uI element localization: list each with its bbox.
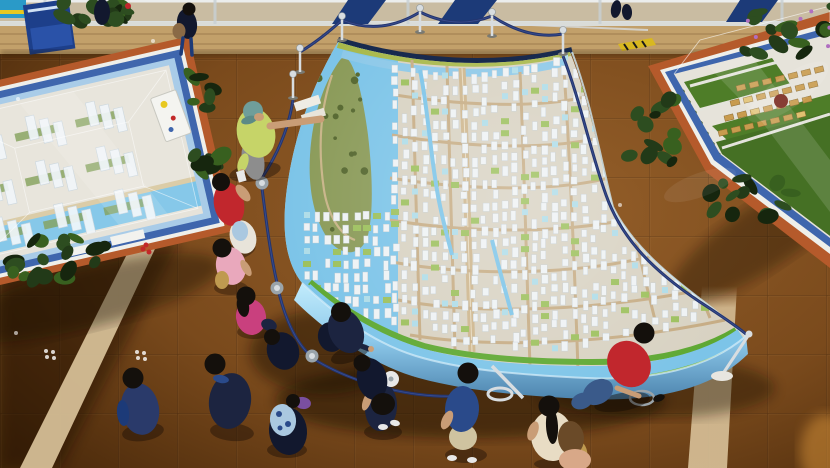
person-leaning-navy-part	[331, 302, 351, 322]
leaning-post-base	[711, 371, 733, 381]
person-blue-polo-part	[467, 457, 477, 463]
purple-flower	[754, 35, 758, 39]
person-walking-top-part	[181, 38, 183, 54]
light-reflection	[143, 357, 147, 361]
light-reflection	[52, 356, 56, 360]
light-reflection	[135, 350, 139, 354]
person-dark-d-part	[354, 355, 371, 372]
red-flower	[141, 247, 146, 252]
person-walking-top-part	[183, 3, 196, 16]
post-top-ball	[309, 353, 315, 359]
person-dark-b-part	[264, 329, 280, 345]
wall-poster-stripe	[0, 10, 26, 14]
light-reflection	[151, 39, 155, 43]
person-walking-top-part	[191, 39, 192, 55]
person-backpack-part	[285, 421, 291, 427]
post-ball	[560, 27, 567, 34]
post-ball	[489, 9, 496, 16]
person-red-dot-top-part	[125, 3, 131, 9]
light-reflection	[618, 203, 622, 207]
person-red-man-part	[634, 323, 655, 344]
person-navy-a-part	[205, 354, 226, 375]
purple-flower	[826, 44, 830, 48]
purple-flower	[809, 9, 813, 13]
post-top-ball	[259, 180, 265, 186]
plant-foliage	[187, 98, 200, 106]
post-ball	[417, 5, 424, 12]
person-backpack-part	[286, 394, 300, 408]
person-blue-polo-part	[447, 455, 457, 461]
post-ball	[339, 13, 346, 20]
person-guide-cap-part	[254, 113, 264, 121]
person-dark-d-part	[378, 424, 388, 430]
wall-poster	[0, 0, 26, 18]
red-flower	[147, 250, 152, 255]
person-pink-woman-part	[215, 271, 229, 289]
leaning-post-ball	[746, 331, 753, 338]
person-backpack-part	[278, 426, 283, 431]
person-red-dot-top	[125, 3, 131, 9]
red-flower	[144, 243, 149, 248]
light-reflection	[14, 331, 18, 335]
person-pink-woman-part	[213, 239, 232, 258]
person-leaning-navy-part	[368, 346, 374, 352]
post-top-ball	[274, 285, 280, 291]
purple-flower	[799, 17, 803, 21]
person-red-woman-part	[212, 173, 230, 191]
light-reflection	[45, 355, 49, 359]
person-blue-jacket-part	[123, 368, 144, 389]
light-reflection	[136, 356, 140, 360]
person-top-left	[94, 0, 110, 25]
atrium-photo	[0, 0, 830, 468]
post-ball	[297, 45, 304, 52]
scene-photo	[0, 0, 830, 468]
light-reflection	[142, 351, 146, 355]
post-ball	[290, 71, 297, 78]
person-top-left-part	[94, 0, 110, 25]
purple-flower	[746, 19, 750, 23]
light-reflection	[16, 97, 20, 101]
person-white-cap-part	[389, 377, 394, 382]
person-backpack-part	[276, 411, 282, 417]
light-reflection	[44, 349, 48, 353]
person-blue-polo-part	[458, 363, 479, 384]
light-reflection	[51, 350, 55, 354]
